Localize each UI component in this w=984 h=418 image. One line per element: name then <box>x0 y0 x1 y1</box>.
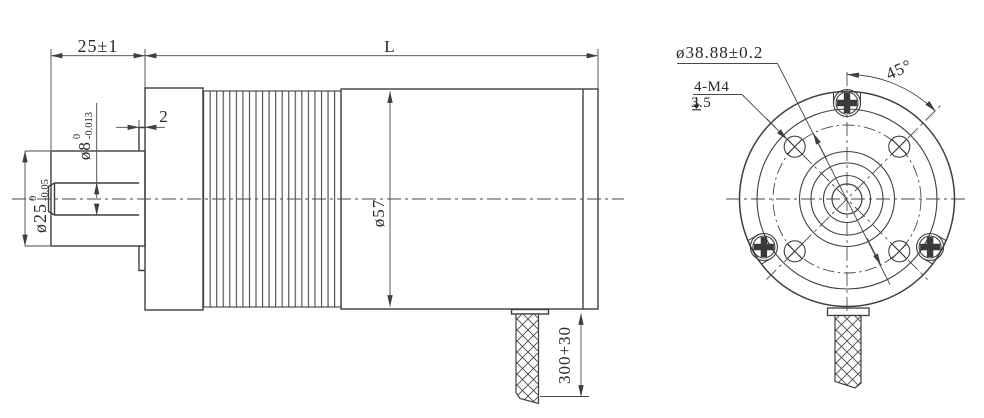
dim-boss-length: 25±1 <box>58 37 138 55</box>
side-view-outline <box>49 88 599 404</box>
drawing-linework <box>0 0 984 418</box>
dim-body-diameter: ø57 <box>366 178 390 248</box>
dim-shaft-diameter: ø8 0 -0.013 <box>65 91 103 181</box>
dim-bolt-circle-diameter: ø38.88±0.2 <box>676 44 763 61</box>
boss-dia-value: ø25 <box>31 203 49 233</box>
shaft-dia-tolerance: 0 -0.013 <box>72 112 95 139</box>
dim-body-length: L <box>372 38 408 55</box>
dim-boss-diameter: ø25 0 -0.05 <box>19 150 61 262</box>
dim-mount-hole-depth: 3.5 <box>691 96 711 111</box>
boss-dia-tolerance: 0 -0.05 <box>28 179 51 201</box>
depth-symbol-icon <box>691 96 702 111</box>
dim-mount-holes: 4-M4 <box>694 80 729 95</box>
dim-cable-length: 300+30 <box>553 309 575 401</box>
dim-pilot-step: 2 <box>150 108 178 125</box>
shaft-dia-value: ø8 <box>76 141 93 160</box>
drawing-canvas: 25±1 L 2 ø8 0 -0.013 ø25 0 -0.05 ø57 300… <box>0 0 984 418</box>
